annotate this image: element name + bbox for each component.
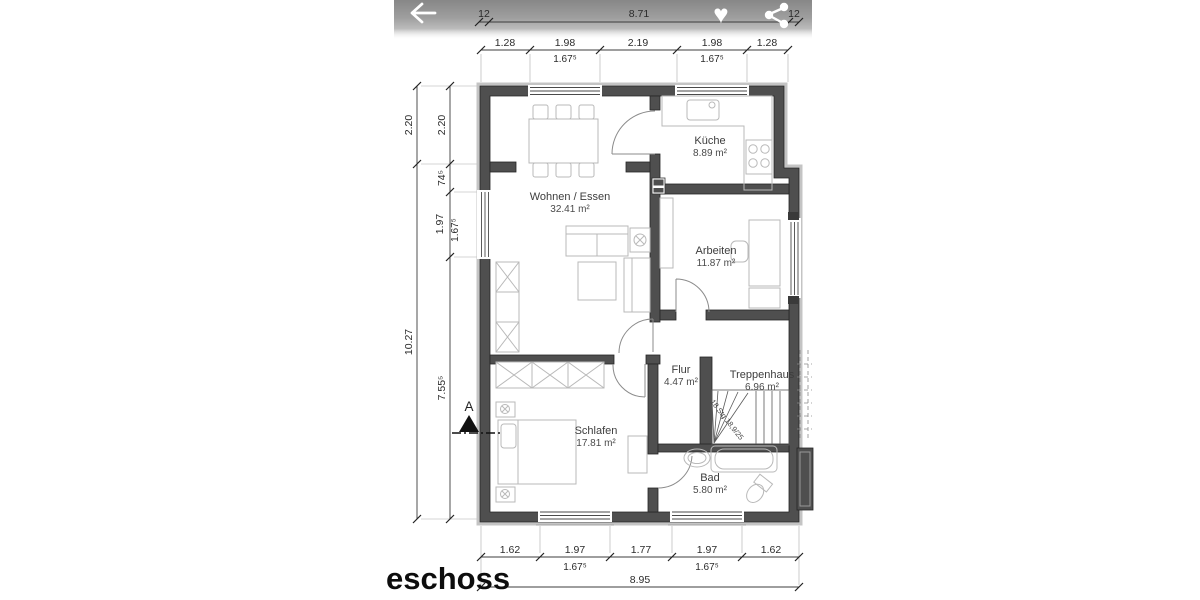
dim-label: 1.67⁵	[450, 218, 461, 242]
section-marker-triangle	[459, 415, 479, 432]
room-area-wohnen-essen: 32.41 m²	[550, 204, 590, 215]
interior-wall	[648, 488, 658, 512]
floor-plan-canvas: 12 8.71 12 ♥ 1.28 1.98 2.19 1.98 1.28 1.…	[0, 0, 1200, 600]
interior-wall	[660, 310, 676, 320]
dim-label: 7.55⁵	[436, 376, 448, 401]
dim-label: 2.20	[403, 115, 415, 136]
dim-label: 1.28	[757, 37, 778, 49]
shaft-cell	[654, 180, 664, 186]
dimension-bottom: 1.62 1.97 1.77 1.97 1.62 1.67⁵ 1.67⁵ 8.9…	[477, 526, 803, 591]
dim-label: 12	[478, 8, 490, 20]
app-topbar	[394, 0, 812, 40]
room-area-bad: 5.80 m²	[693, 485, 728, 496]
dim-label: 1.67⁵	[700, 54, 724, 65]
door-study	[676, 279, 709, 312]
dim-label: 1.62	[761, 544, 782, 556]
room-area-schlafen: 17.81 m²	[576, 438, 616, 449]
dim-label: 74⁵	[436, 170, 448, 186]
section-marker: A	[452, 399, 500, 433]
bathroom-fixtures	[684, 446, 777, 506]
dim-label: 2.19	[628, 37, 649, 49]
window	[477, 190, 492, 259]
floor-plan-viewer: 12 8.71 12 ♥ 1.28 1.98 2.19 1.98 1.28 1.…	[0, 0, 1200, 600]
heart-icon[interactable]: ♥	[713, 0, 728, 29]
room-label-kueche: Küche	[694, 135, 725, 147]
dim-label: 1.28	[495, 37, 516, 49]
door-bath	[658, 456, 692, 488]
dim-label: 8.71	[629, 8, 650, 20]
dim-label: 12	[788, 8, 800, 20]
dim-label: 1.98	[555, 37, 576, 49]
door-kitchen	[612, 111, 655, 154]
interior-wall	[646, 355, 660, 364]
dimension-left: 2.20 10.27 2.20 74⁵ 1.97 1.67⁵ 7.55⁵	[403, 82, 477, 523]
room-label-treppenhaus: Treppenhaus	[730, 369, 795, 381]
living-room-furniture	[496, 226, 650, 352]
room-label-wohnen-essen: Wohnen / Essen	[530, 191, 611, 203]
dim-label: 1.67⁵	[553, 54, 577, 65]
dim-label: 10.27	[403, 329, 415, 355]
dining-set	[529, 105, 598, 177]
interior-wall	[490, 162, 516, 172]
room-area-arbeiten: 11.87 m²	[697, 258, 736, 269]
dim-label: 1.97	[565, 544, 586, 556]
interior-wall	[650, 96, 660, 110]
dim-label: 1.67⁵	[563, 562, 587, 573]
plan-title-fragment: eschoss	[386, 561, 510, 596]
window	[787, 218, 801, 298]
room-label-schlafen: Schlafen	[575, 425, 618, 437]
dim-label: 1.98	[702, 37, 723, 49]
dimension-top-segments: 1.28 1.98 2.19 1.98 1.28 1.67⁵ 1.67⁵	[477, 37, 792, 82]
section-marker-label: A	[464, 399, 473, 414]
room-area-kueche: 8.89 m²	[693, 148, 728, 159]
chimney-pier	[797, 448, 813, 510]
window-pier	[788, 212, 799, 220]
dim-label: 1.67⁵	[695, 562, 719, 573]
interior-wall	[706, 310, 789, 320]
room-label-bad: Bad	[700, 472, 720, 484]
interior-wall	[648, 364, 658, 454]
window-pier	[788, 296, 799, 304]
interior-wall	[660, 184, 789, 194]
dim-label: 8.95	[630, 574, 651, 586]
dim-label: 1.77	[631, 544, 652, 556]
dim-label: 1.97	[697, 544, 718, 556]
toilet	[743, 474, 773, 506]
room-area-flur: 4.47 m²	[664, 377, 699, 388]
door-living	[619, 319, 653, 353]
bed	[498, 420, 576, 484]
door-bedroom	[613, 364, 645, 397]
dim-label: 2.20	[436, 115, 448, 136]
dim-label: 1.97	[434, 214, 446, 235]
dim-label: 1.62	[500, 544, 521, 556]
dresser	[628, 436, 647, 473]
bedroom-furniture	[496, 362, 647, 502]
kitchen-stove	[746, 140, 772, 174]
stair-treads	[756, 391, 780, 444]
room-area-treppenhaus: 6.96 m²	[745, 382, 780, 393]
desk	[749, 220, 780, 286]
shaft-cell	[654, 188, 664, 193]
room-label-flur: Flur	[672, 364, 691, 376]
room-label-arbeiten: Arbeiten	[696, 245, 737, 257]
